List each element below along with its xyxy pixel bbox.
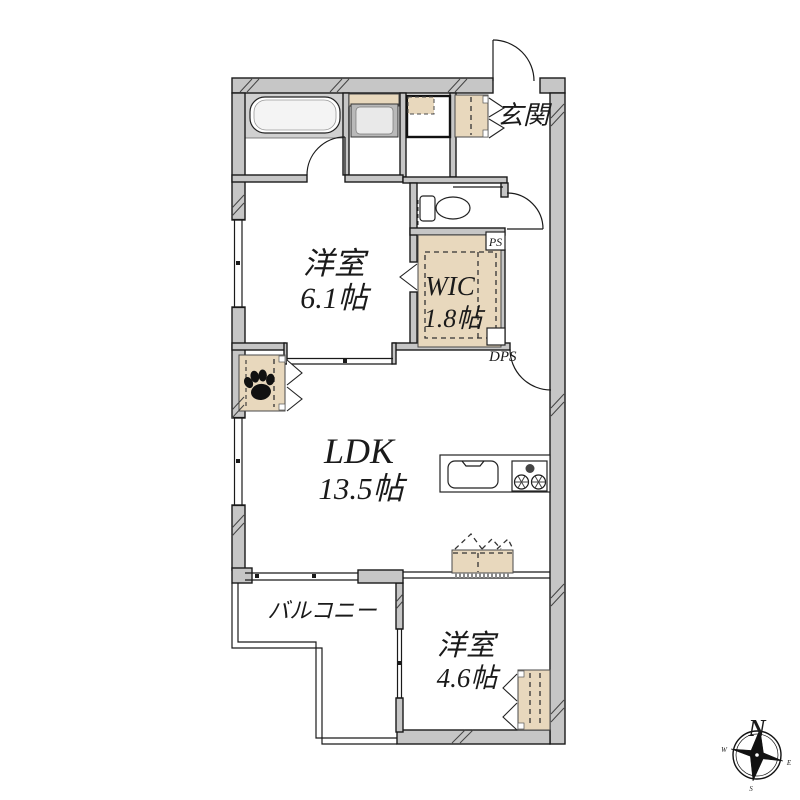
wic-door-chevron	[400, 264, 417, 290]
toilet	[418, 196, 470, 226]
kitchen-counter	[440, 455, 550, 492]
compass-w: W	[721, 746, 728, 754]
compass-n: N	[747, 716, 767, 742]
washing-machine	[349, 94, 399, 137]
window-bedroom2-balcony	[396, 629, 403, 698]
floorplan-canvas: PS DPS 玄関 洋室 6.1帖 WIC 1.8帖 LDK 13.5帖 バルコ…	[0, 0, 800, 800]
ldk-counter-closet	[452, 534, 513, 576]
balcony-label: バルコニー	[267, 598, 378, 623]
window-bedroom1	[232, 220, 245, 308]
washbasin	[407, 96, 450, 137]
kitchen-sink	[448, 461, 498, 488]
ldk-label: LDK	[323, 431, 396, 471]
bedroom1-size: 6.1帖	[300, 282, 372, 315]
ldk-size: 13.5帖	[318, 471, 407, 506]
compass-s: S	[749, 785, 753, 793]
genkan-label: 玄関	[497, 101, 552, 130]
bathtub	[250, 97, 340, 133]
bathroom-door-arc	[307, 137, 345, 175]
bedroom2-closet	[503, 670, 550, 730]
bedroom1-label: 洋室	[303, 246, 369, 281]
bedroom2-size: 4.6帖	[437, 663, 502, 693]
toilet-door-arc	[507, 193, 543, 229]
compass-rose: N W E S	[721, 716, 792, 793]
stove	[512, 461, 547, 491]
compass-e: E	[786, 759, 792, 767]
floorplan: PS DPS 玄関 洋室 6.1帖 WIC 1.8帖 LDK 13.5帖 バルコ…	[0, 0, 800, 800]
entrance-door-arc	[493, 40, 534, 81]
wic-size: 1.8帖	[424, 304, 487, 333]
ps-label: PS	[488, 235, 502, 249]
dps-label: DPS	[488, 349, 517, 365]
window-ldk	[232, 418, 245, 506]
wic-label: WIC	[425, 271, 475, 301]
bedroom2-label: 洋室	[437, 630, 499, 662]
